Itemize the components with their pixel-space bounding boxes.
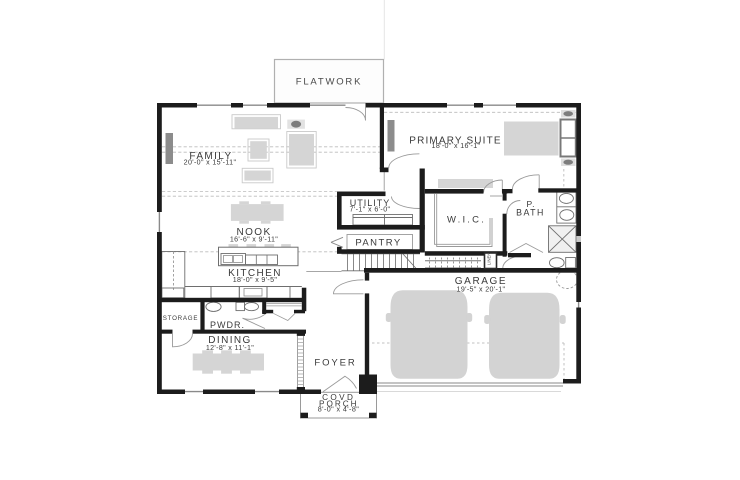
svg-text:19'-5" x 20'-1": 19'-5" x 20'-1" (457, 286, 506, 294)
svg-text:LINEN: LINEN (487, 253, 492, 265)
svg-text:PWDR.: PWDR. (210, 320, 245, 330)
svg-text:18'-0" x 9'-5": 18'-0" x 9'-5" (233, 276, 278, 284)
svg-text:18'-0" x 16'-1": 18'-0" x 16'-1" (432, 142, 481, 150)
svg-text:PANTRY: PANTRY (355, 238, 401, 249)
svg-text:12'-8" x 11'-1": 12'-8" x 11'-1" (206, 344, 254, 352)
svg-text:7'-1" x 6'-0": 7'-1" x 6'-0" (350, 206, 391, 214)
svg-text:W.I.C.: W.I.C. (447, 215, 486, 226)
svg-text:FLATWORK: FLATWORK (296, 77, 362, 88)
svg-text:STORAGE: STORAGE (163, 315, 198, 322)
svg-text:16'-6" x 9'-11": 16'-6" x 9'-11" (230, 236, 278, 244)
svg-text:BATH: BATH (516, 207, 545, 217)
svg-text:FOYER: FOYER (314, 357, 356, 368)
svg-text:20'-0" x 15'-11": 20'-0" x 15'-11" (184, 158, 237, 166)
svg-text:8'-0" x 4'-8": 8'-0" x 4'-8" (318, 405, 359, 414)
